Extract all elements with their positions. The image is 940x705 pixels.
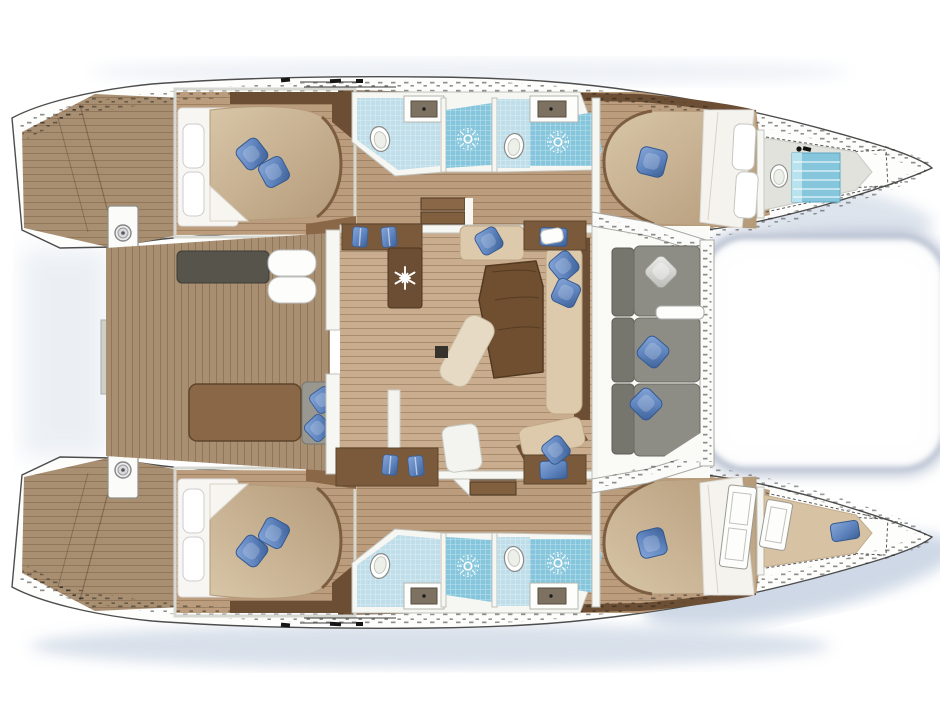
floorplan-drawing xyxy=(0,0,940,705)
crew-pillow xyxy=(830,520,860,542)
cockpit-table xyxy=(189,384,301,441)
aft-bulkhead xyxy=(326,230,340,330)
cockpit-bench-charcoal xyxy=(177,251,269,283)
galley-counter-front xyxy=(388,390,400,448)
white-cushion xyxy=(268,250,316,276)
trampoline xyxy=(704,238,940,468)
sofa-back xyxy=(612,384,634,454)
aft-cockpit xyxy=(106,230,373,474)
armrest xyxy=(656,306,704,319)
salon xyxy=(336,220,602,486)
galley-island xyxy=(441,423,483,474)
sofa-back xyxy=(612,318,634,382)
yacht-floorplan-canvas xyxy=(0,0,940,705)
white-cushion xyxy=(268,277,316,303)
sofa-back xyxy=(612,248,634,316)
forward-cockpit xyxy=(592,212,714,493)
floor-hatch xyxy=(435,346,448,358)
